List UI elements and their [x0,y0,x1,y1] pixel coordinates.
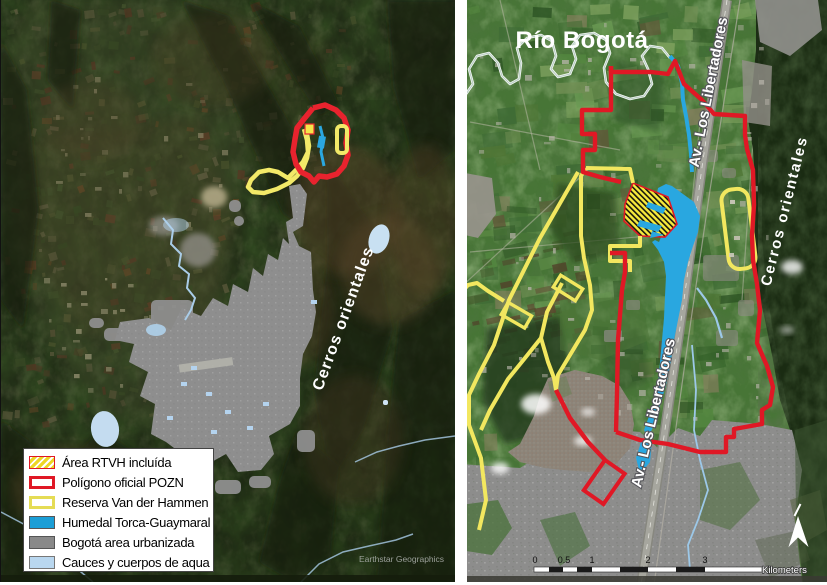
svg-text:Río Bogotá: Río Bogotá [516,27,649,54]
svg-text:3: 3 [702,555,707,565]
svg-text:0.5: 0.5 [558,555,571,565]
svg-text:1: 1 [589,555,594,565]
svg-text:0: 0 [532,555,537,565]
svg-text:Kilometers: Kilometers [762,565,807,576]
svg-text:Earthstar Geographics: Earthstar Geographics [359,554,444,564]
svg-text:2: 2 [645,555,650,565]
